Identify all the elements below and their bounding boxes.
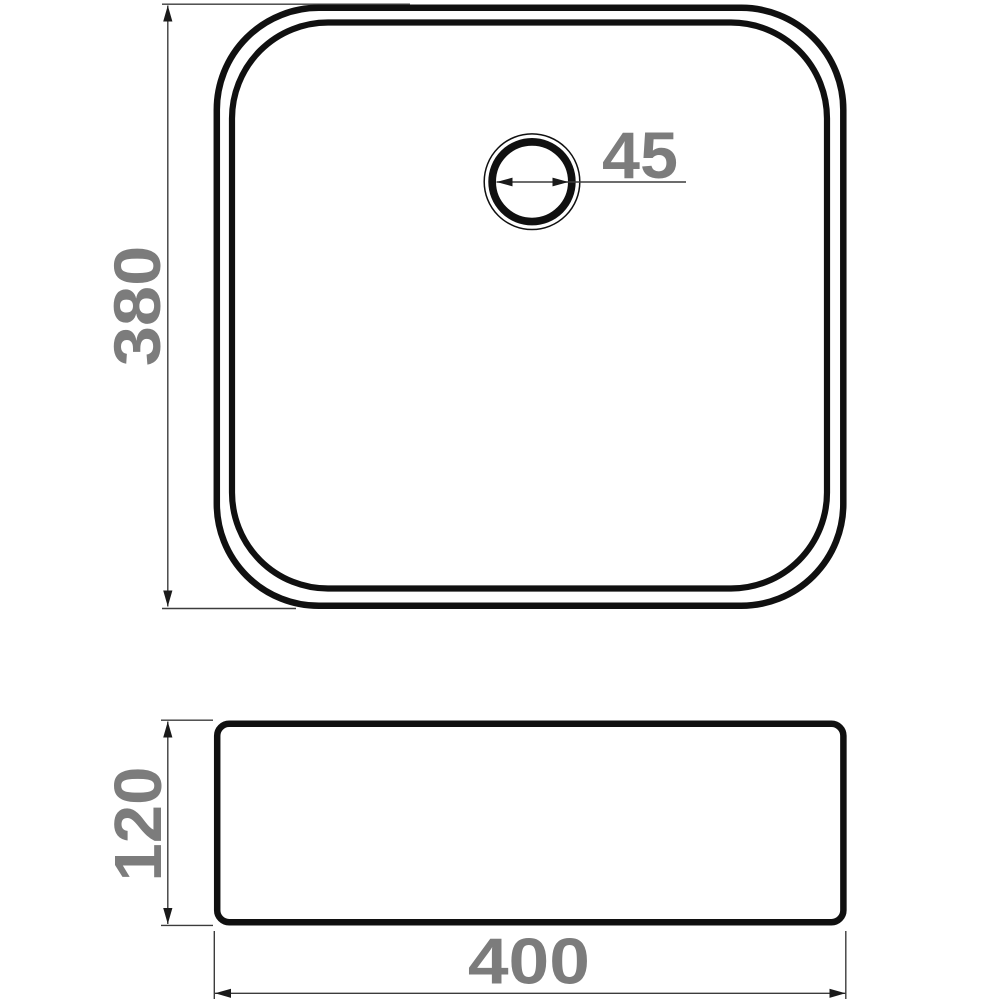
svg-text:400: 400 [468, 926, 590, 998]
svg-text:120: 120 [101, 766, 176, 881]
svg-text:45: 45 [602, 119, 678, 193]
svg-text:380: 380 [100, 246, 174, 367]
